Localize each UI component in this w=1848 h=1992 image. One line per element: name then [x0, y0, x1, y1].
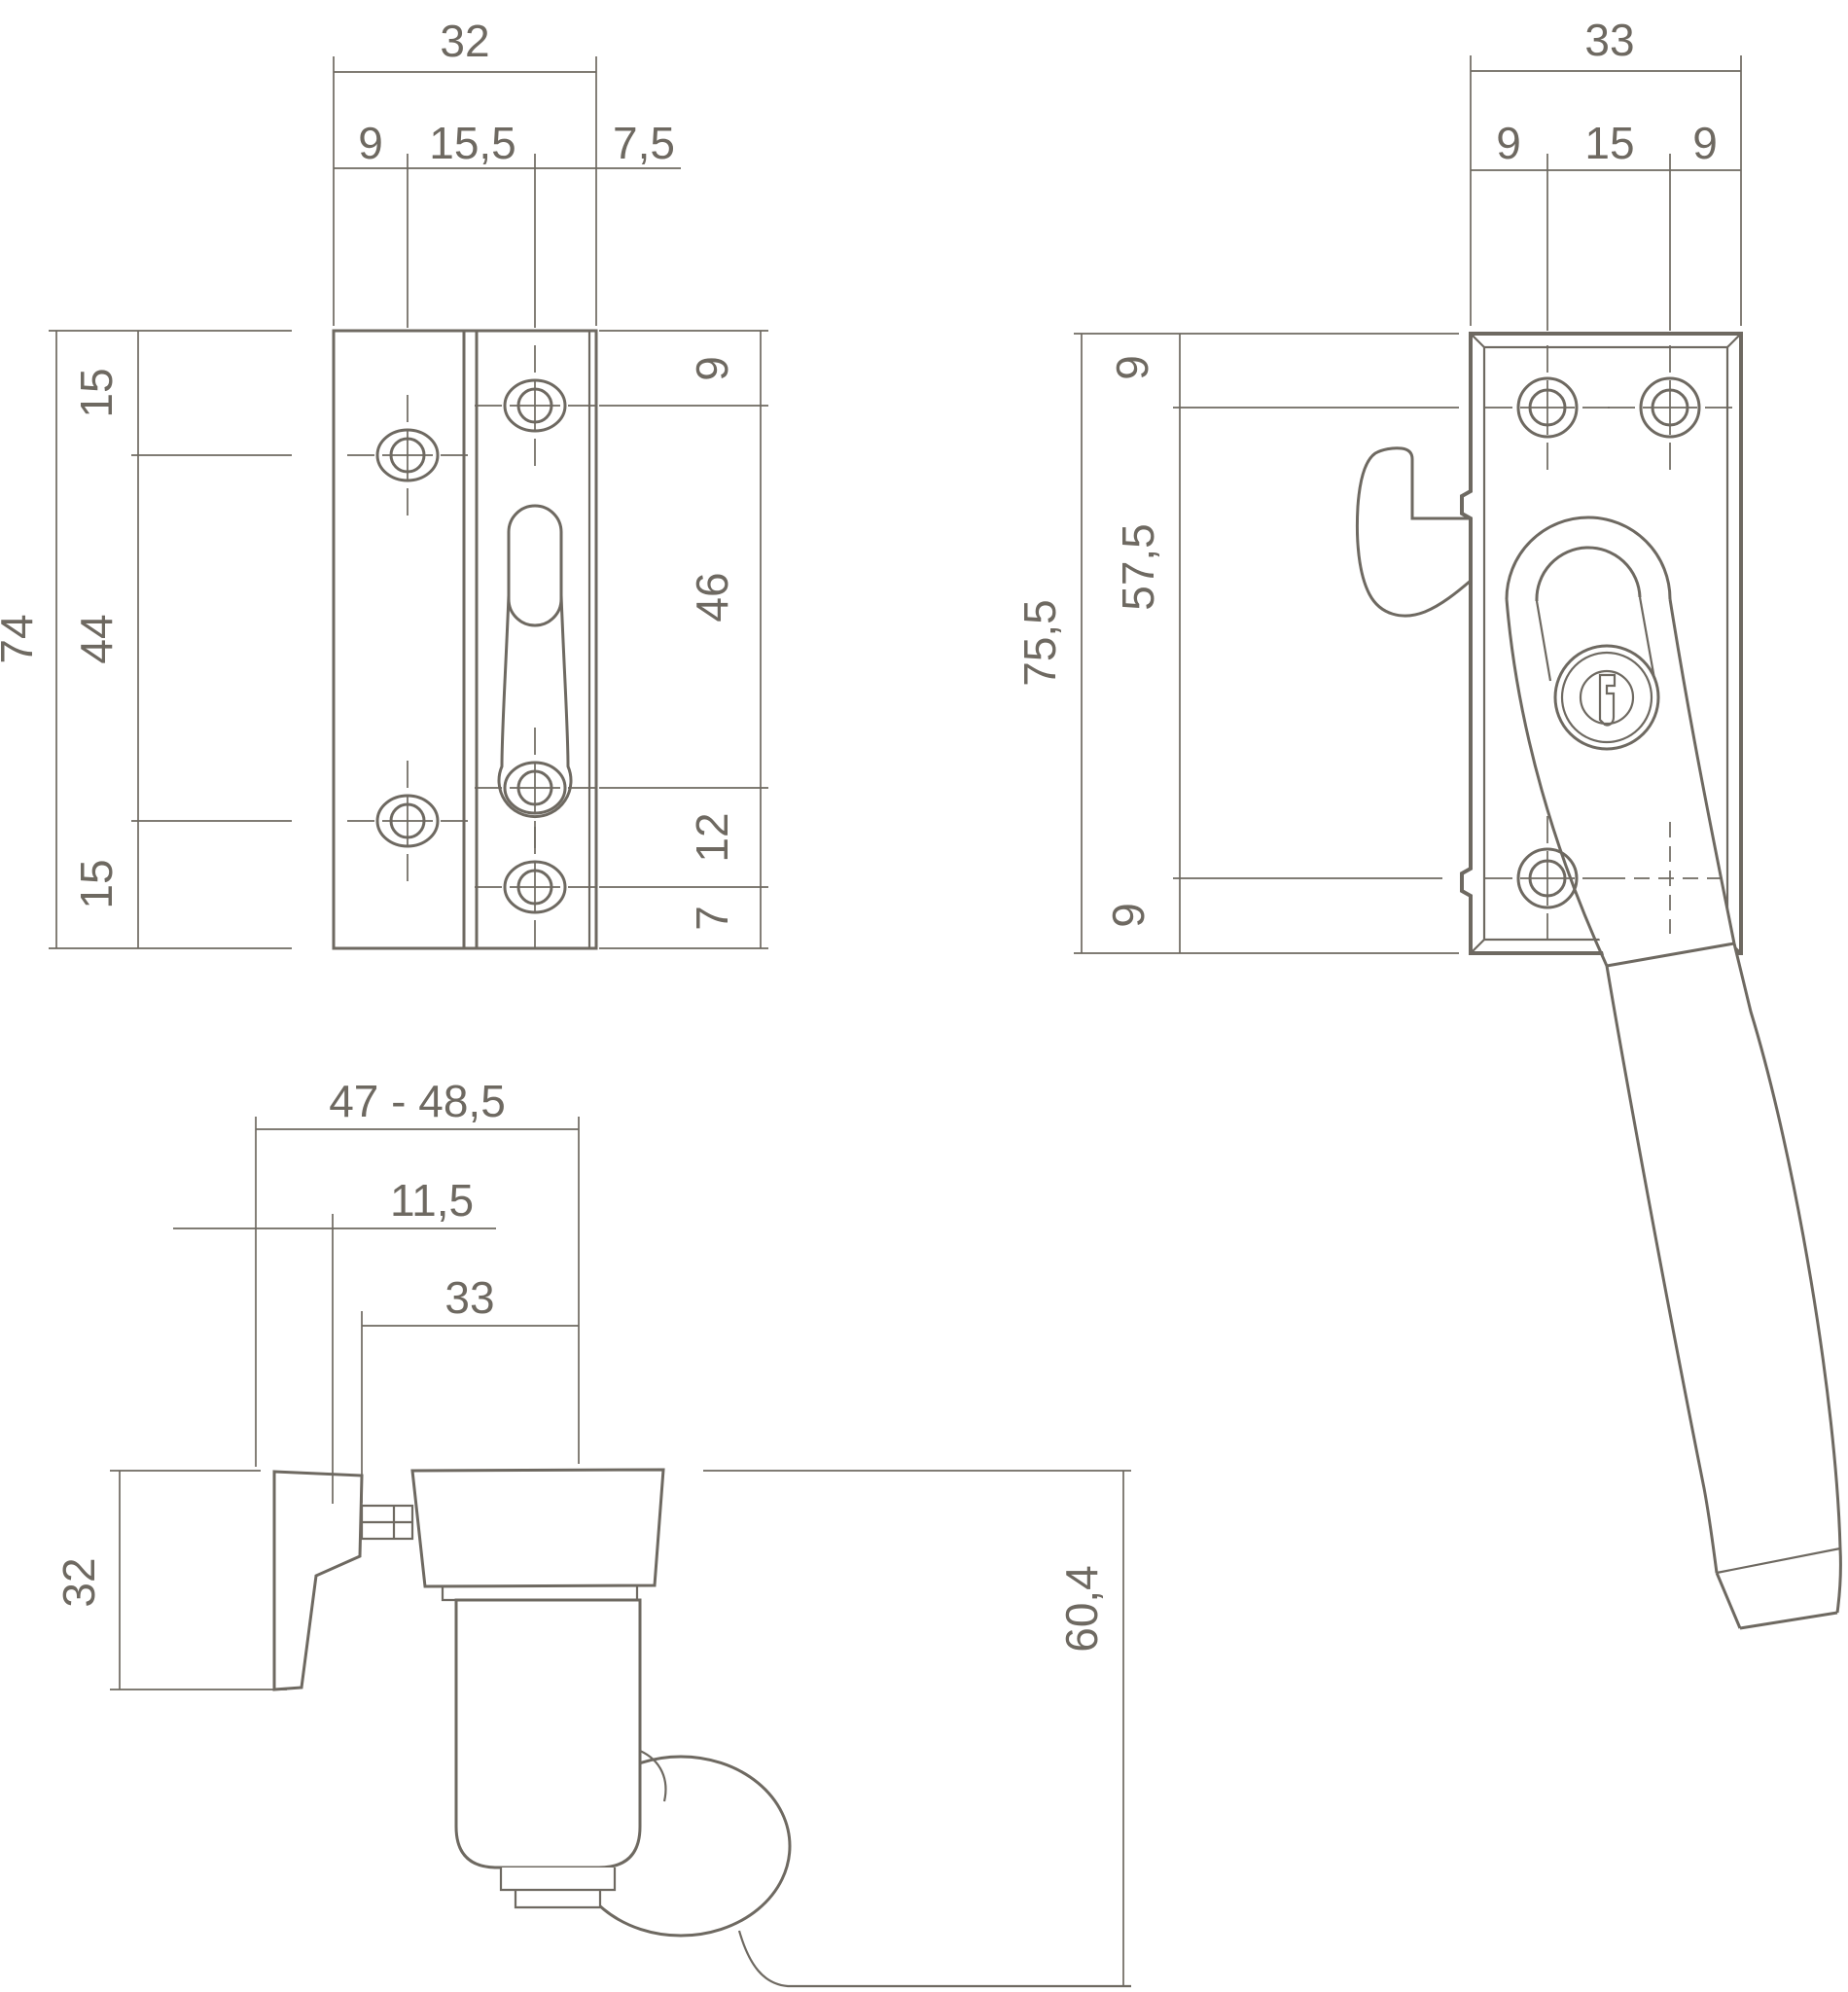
keeper-slot	[509, 506, 561, 625]
screw-hole	[1608, 345, 1732, 470]
dim-label: 60,4	[1056, 1565, 1107, 1653]
grip-bottom-edge-extension	[739, 1931, 1131, 1986]
bevel-corner	[1471, 940, 1484, 953]
bevel-corner	[1727, 334, 1741, 347]
cylinder-foot-fill	[501, 1867, 615, 1890]
hook-side-profile	[274, 1472, 362, 1690]
dim-label: 46	[687, 572, 737, 622]
dim-label: 12	[687, 812, 737, 862]
view-handle-side: 47 - 48,5 11,5 33 32 60,4	[53, 1076, 1131, 1986]
dim-label: 15	[71, 859, 122, 908]
dim-label: 9	[358, 118, 383, 168]
dim-label: 44	[71, 614, 122, 663]
handle-base-cone	[412, 1470, 663, 1586]
dim-label: 7	[687, 906, 737, 931]
technical-drawing-canvas: 32 9 15,5 7,5 74 15 44 15 9 46 12 7	[0, 0, 1848, 1992]
dim-label: 32	[53, 1557, 104, 1607]
handle-grip-fill	[1607, 943, 1840, 1628]
handle-head-fill	[1507, 517, 1734, 966]
dim-label: 15	[71, 368, 122, 417]
base-collar	[443, 1586, 637, 1600]
dim-label: 9	[1496, 118, 1521, 168]
dim-label: 75,5	[1014, 599, 1065, 687]
dim-label: 7,5	[613, 118, 675, 168]
dim-label: 9	[1103, 903, 1154, 928]
latch-hook	[1357, 448, 1471, 616]
dim-label: 74	[0, 614, 42, 663]
view-keeper-front: 32 9 15,5 7,5 74 15 44 15 9 46 12 7	[0, 16, 768, 948]
screw-hole	[347, 395, 468, 516]
bevel-corner	[1471, 334, 1484, 347]
dim-label: 33	[1584, 15, 1634, 65]
dim-label: 32	[440, 16, 489, 66]
screw-hole	[1485, 345, 1610, 470]
drawing-sheet: 32 9 15,5 7,5 74 15 44 15 9 46 12 7	[0, 0, 1848, 1992]
cylinder-foot-fill	[515, 1890, 600, 1907]
dim-label: 33	[444, 1272, 494, 1323]
dim-label: 9	[1107, 355, 1157, 380]
dim-label: 15	[1584, 118, 1634, 168]
view-handle-front: 33 9 15 9 75,5 57,5 9 9	[1014, 15, 1840, 1628]
dim-label: 11,5	[390, 1175, 474, 1226]
dim-label: 15,5	[429, 118, 516, 168]
screw-hole	[475, 827, 595, 947]
lock-cylinder-side	[456, 1600, 640, 1867]
dim-label: 57,5	[1113, 523, 1163, 611]
dim-label: 9	[687, 356, 737, 381]
dim-label: 47 - 48,5	[329, 1076, 506, 1126]
dim-label: 9	[1692, 118, 1718, 168]
screw-hole	[475, 345, 595, 466]
screw-hole	[347, 761, 468, 881]
